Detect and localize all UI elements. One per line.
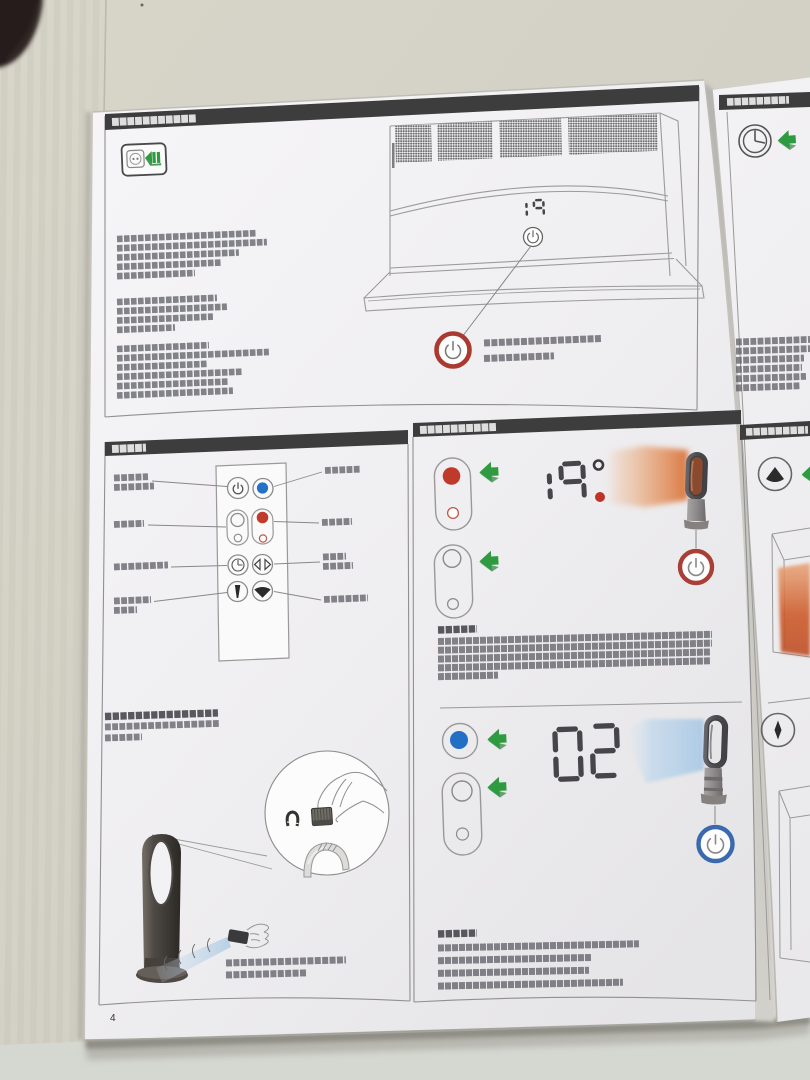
svg-text:4: 4 xyxy=(110,1013,116,1024)
